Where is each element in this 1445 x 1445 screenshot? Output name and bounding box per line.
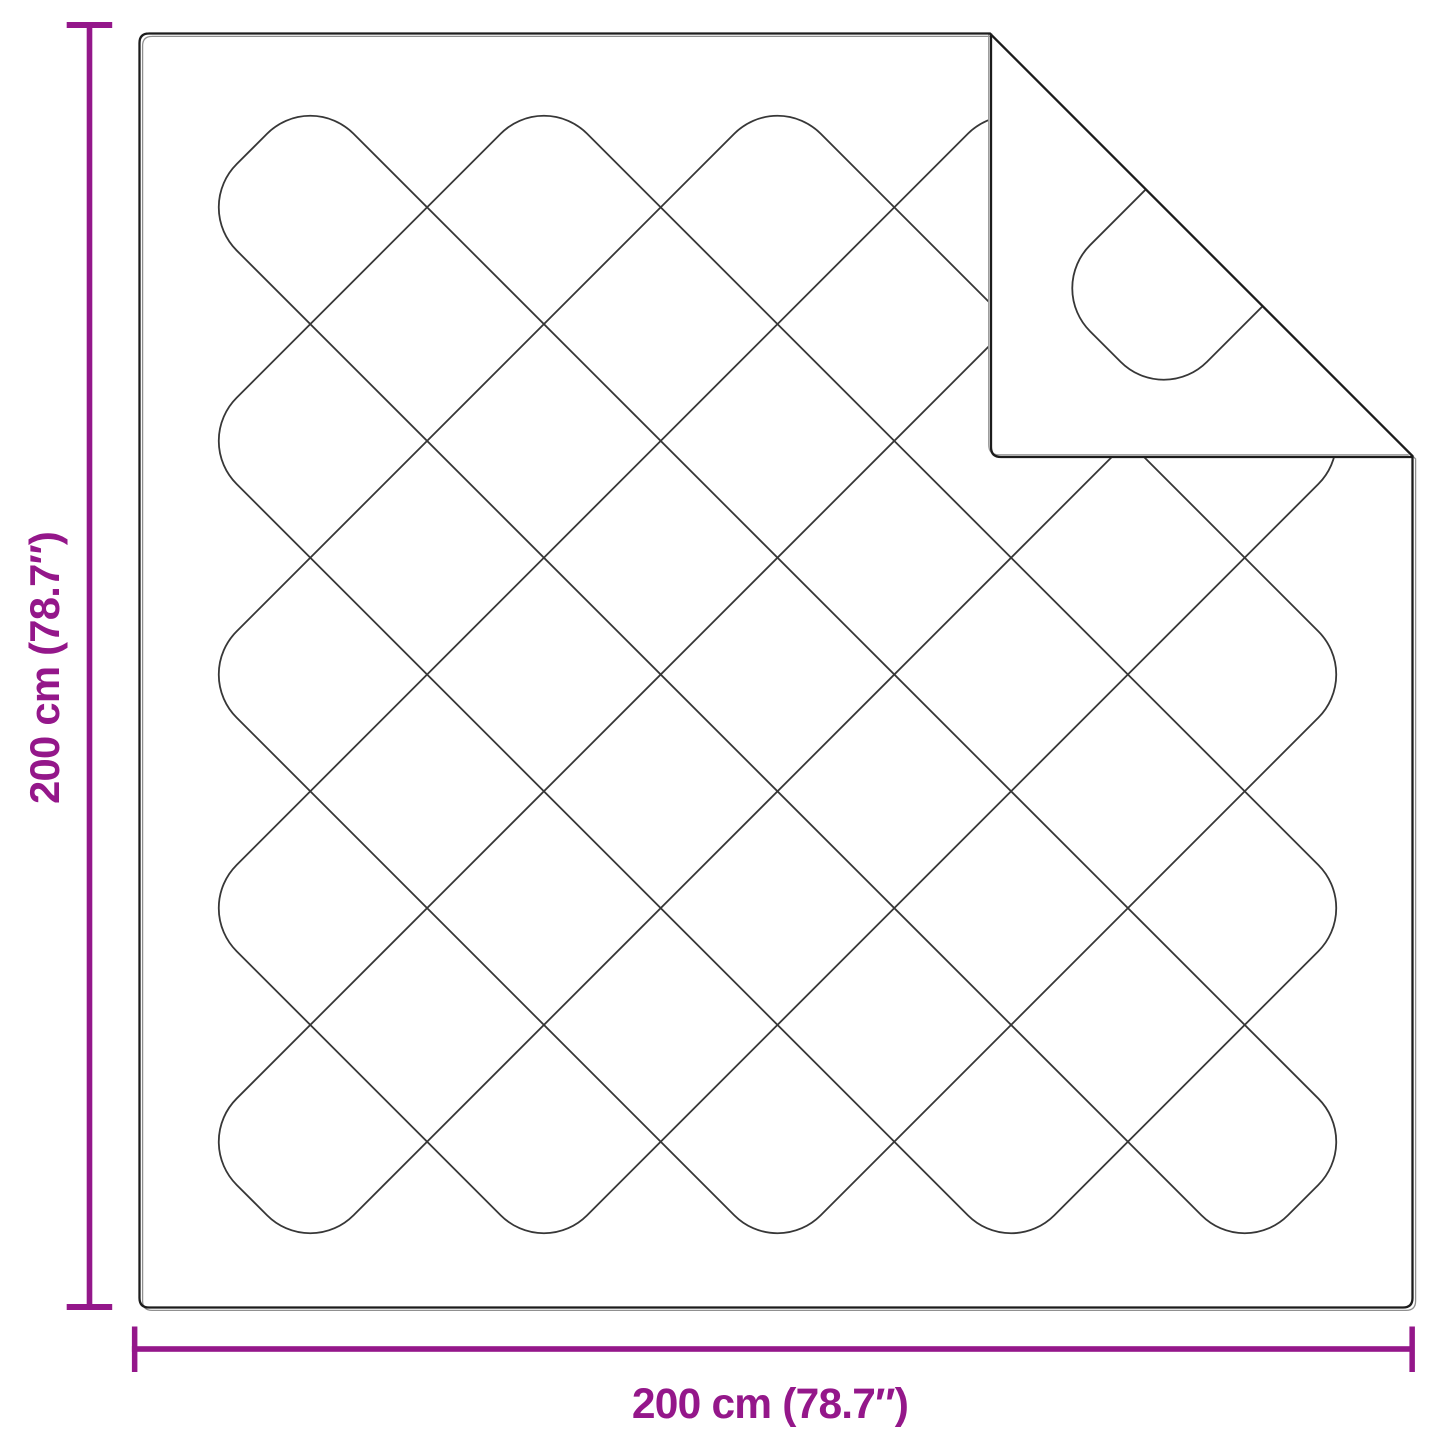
svg-text:200 cm (78.7″): 200 cm (78.7″)	[21, 532, 68, 804]
svg-text:200 cm (78.7″): 200 cm (78.7″)	[632, 1381, 908, 1428]
